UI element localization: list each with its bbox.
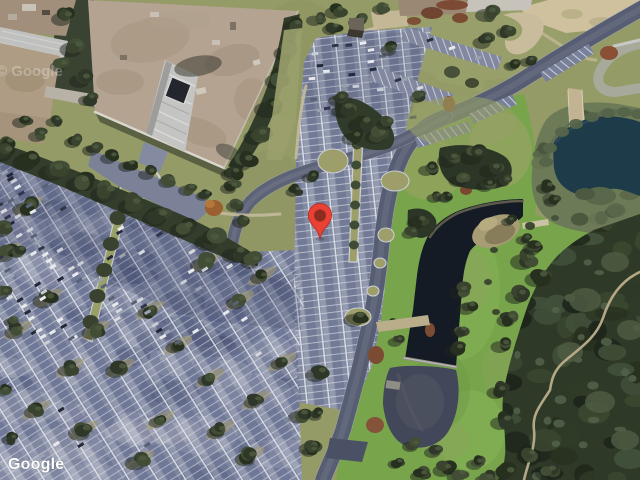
svg-text:Google: Google (8, 456, 64, 473)
svg-text:© Google: © Google (0, 63, 63, 80)
